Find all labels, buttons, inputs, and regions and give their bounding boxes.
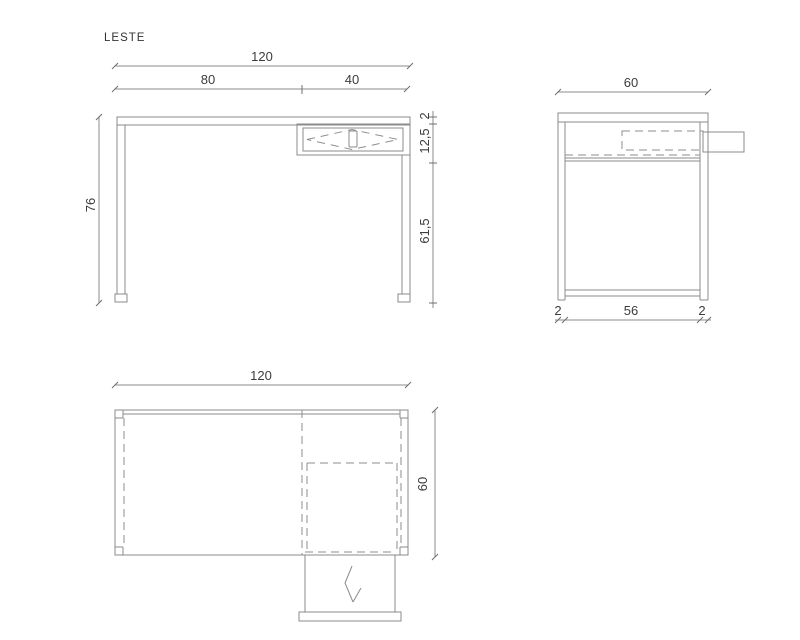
front-right-foot <box>398 294 410 302</box>
plan-drawer-front-panel <box>299 612 401 621</box>
side-bottom-rail <box>565 290 700 296</box>
side-dim-bottom-chain: 2 56 2 <box>554 303 711 323</box>
front-left-foot <box>115 294 127 302</box>
plan-tabletop <box>115 410 408 555</box>
side-dim-depth: 60 <box>555 75 711 95</box>
front-dim-right-width-label: 40 <box>345 72 359 87</box>
front-dim-total-width-label: 120 <box>251 49 273 64</box>
front-view: 120 80 40 76 2 12,5 61,5 <box>83 49 437 308</box>
front-dim-vertical-chain: 2 12,5 61,5 <box>417 111 437 308</box>
plan-hidden-leg-edges <box>124 410 401 555</box>
pull-direction-arrow-icon <box>345 566 361 602</box>
front-dim-left-width-label: 80 <box>201 72 215 87</box>
front-dim-drawer-height-label: 12,5 <box>417 128 432 153</box>
drawing-svg: LESTE 120 80 40 76 2 12,5 61,5 <box>0 0 800 640</box>
side-dim-back-leg-label: 2 <box>698 303 705 318</box>
side-apron-bottom <box>565 158 700 161</box>
side-drawer-hidden <box>622 131 703 150</box>
plan-dim-depth: 60 <box>415 407 438 560</box>
side-tabletop <box>558 113 708 122</box>
side-right-leg <box>700 122 708 300</box>
side-dim-inner-depth-label: 56 <box>624 303 638 318</box>
side-dim-depth-label: 60 <box>624 75 638 90</box>
plan-drawer-hidden-outline <box>305 463 397 552</box>
plan-dim-width-label: 120 <box>250 368 272 383</box>
side-left-leg <box>558 122 565 300</box>
front-dim-split-widths: 80 40 <box>112 72 410 94</box>
front-left-leg <box>115 125 127 302</box>
side-view: 60 2 56 2 <box>554 75 744 323</box>
plan-corner-legs <box>115 410 408 555</box>
front-right-leg <box>398 125 410 302</box>
drawing-title: LESTE <box>104 32 145 44</box>
plan-dim-width: 120 <box>112 368 411 388</box>
side-drawer-pulled-out <box>703 132 744 152</box>
front-dim-under-drawer-label: 61,5 <box>417 218 432 243</box>
technical-drawing-page: LESTE 120 80 40 76 2 12,5 61,5 <box>0 0 800 640</box>
plan-drawer-pulled-out <box>299 555 401 621</box>
front-dim-height-label: 76 <box>83 198 98 212</box>
plan-view: 120 60 <box>112 368 438 621</box>
front-drawer-handle <box>349 131 357 147</box>
front-dim-height: 76 <box>83 114 102 306</box>
plan-dim-depth-label: 60 <box>415 477 430 491</box>
front-drawer-box <box>297 124 410 155</box>
front-dim-top-thickness-label: 2 <box>417 112 432 119</box>
front-dim-total-width: 120 <box>112 49 413 69</box>
side-dim-front-leg-label: 2 <box>554 303 561 318</box>
front-drawer-unit <box>297 124 410 155</box>
